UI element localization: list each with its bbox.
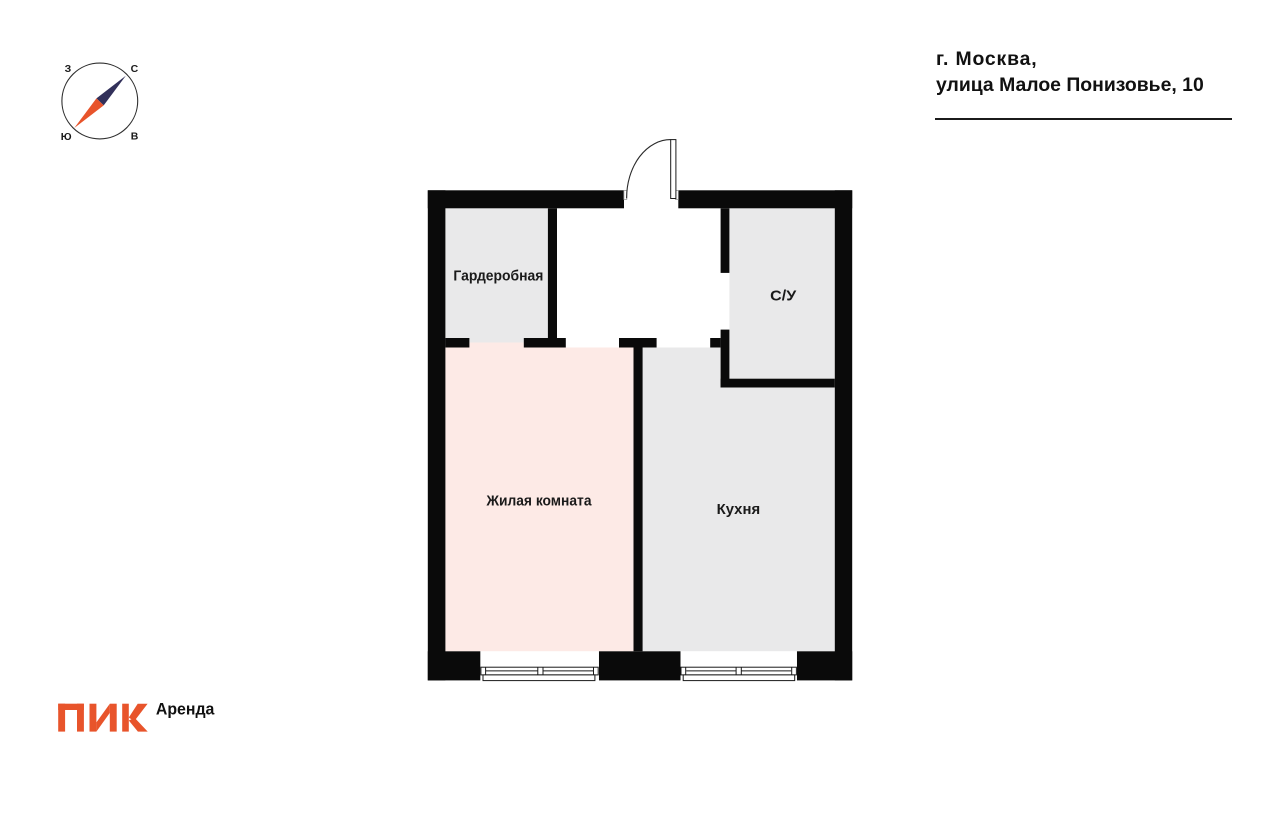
svg-text:Ю: Ю — [61, 131, 72, 143]
svg-text:Кухня: Кухня — [717, 501, 761, 518]
svg-text:Жилая комната: Жилая комната — [486, 493, 593, 510]
svg-text:В: В — [131, 131, 139, 143]
svg-text:Гардеробная: Гардеробная — [453, 267, 543, 284]
svg-text:З: З — [65, 63, 72, 75]
svg-text:С: С — [131, 63, 139, 75]
svg-text:Аренда: Аренда — [156, 699, 215, 718]
svg-text:С/У: С/У — [770, 287, 797, 304]
